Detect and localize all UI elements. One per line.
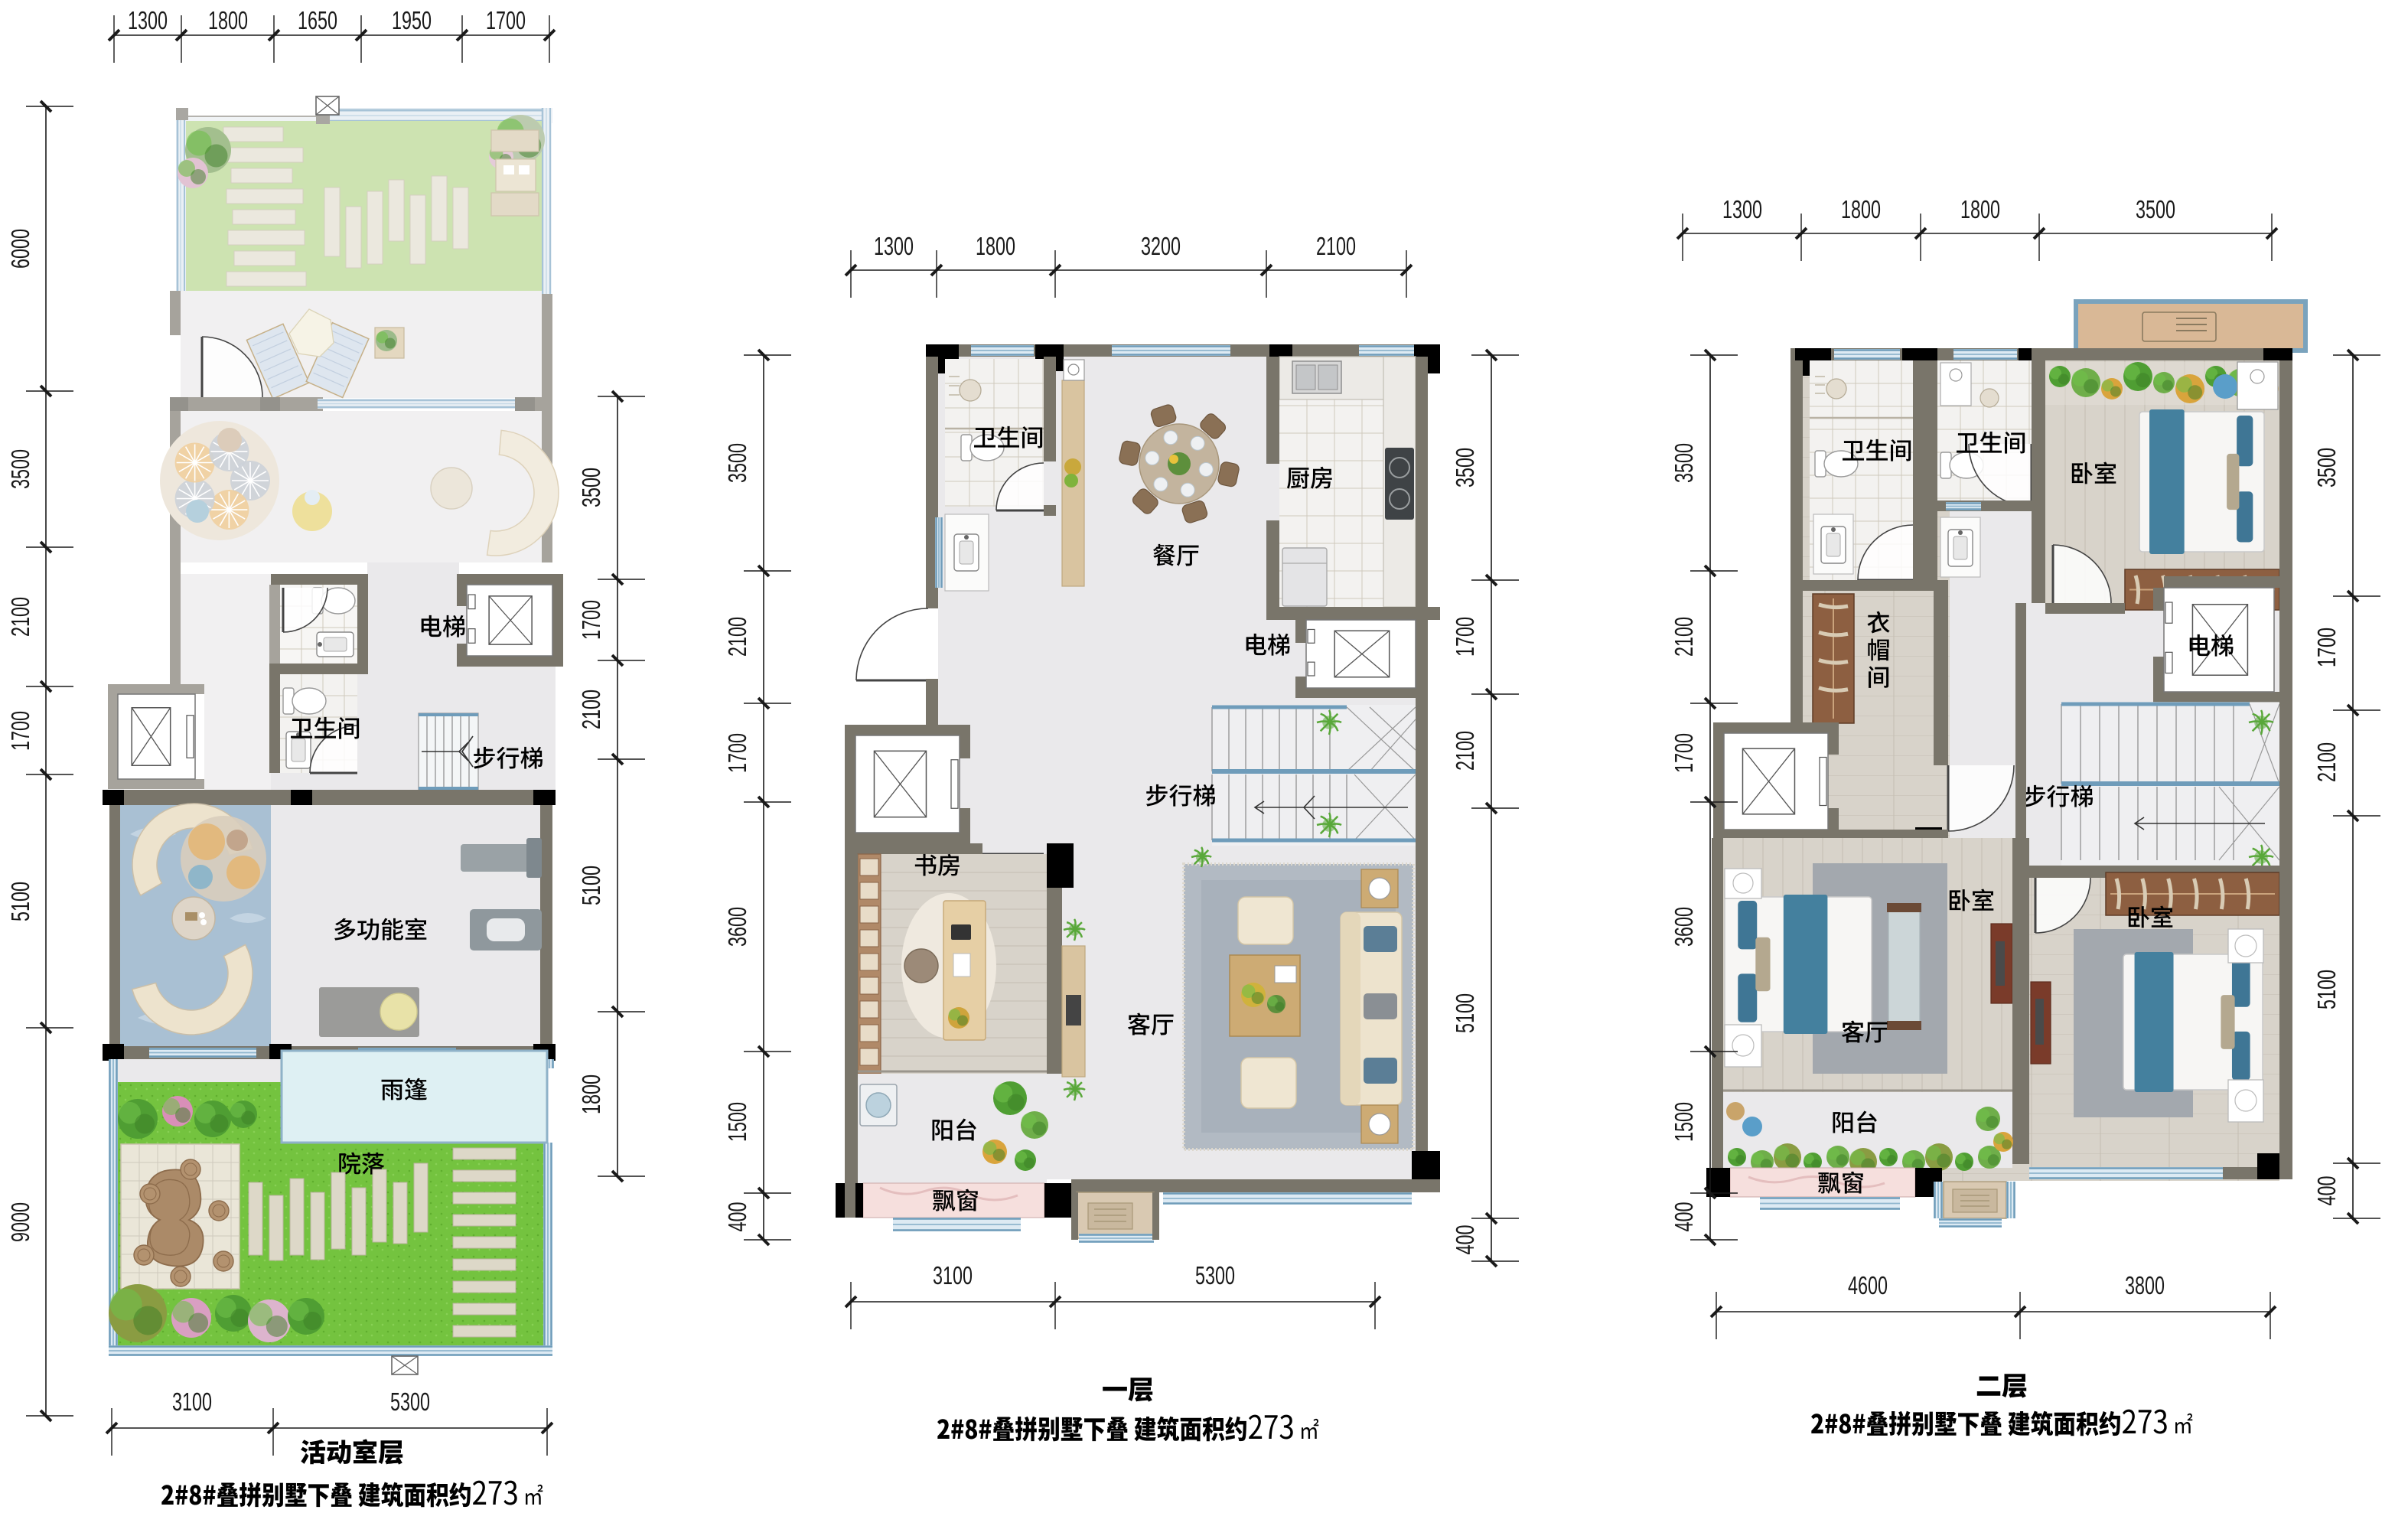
svg-text:3600: 3600 bbox=[723, 907, 751, 947]
svg-text:5300: 5300 bbox=[1195, 1261, 1235, 1290]
svg-text:1300: 1300 bbox=[128, 6, 168, 34]
svg-text:3100: 3100 bbox=[172, 1387, 212, 1416]
svg-text:1700: 1700 bbox=[1670, 733, 1698, 773]
svg-text:1700: 1700 bbox=[486, 6, 526, 34]
svg-text:2100: 2100 bbox=[1670, 617, 1698, 657]
svg-text:400: 400 bbox=[2312, 1176, 2341, 1206]
svg-text:2100: 2100 bbox=[1316, 232, 1356, 260]
svg-text:1800: 1800 bbox=[577, 1074, 605, 1114]
svg-text:2100: 2100 bbox=[1451, 731, 1479, 771]
svg-text:2100: 2100 bbox=[2312, 742, 2341, 782]
svg-text:400: 400 bbox=[1670, 1202, 1698, 1232]
svg-text:1700: 1700 bbox=[1451, 617, 1479, 657]
svg-text:1700: 1700 bbox=[6, 711, 34, 751]
svg-text:2100: 2100 bbox=[577, 690, 605, 729]
svg-text:3500: 3500 bbox=[723, 443, 751, 483]
svg-text:1800: 1800 bbox=[976, 232, 1015, 260]
svg-text:1650: 1650 bbox=[298, 6, 337, 34]
svg-text:5100: 5100 bbox=[577, 866, 605, 905]
svg-text:3500: 3500 bbox=[1451, 448, 1479, 487]
svg-text:2100: 2100 bbox=[723, 617, 751, 657]
svg-text:400: 400 bbox=[1451, 1225, 1479, 1255]
svg-text:1800: 1800 bbox=[1841, 195, 1881, 223]
svg-text:1300: 1300 bbox=[874, 232, 914, 260]
svg-text:4600: 4600 bbox=[1848, 1271, 1888, 1299]
svg-text:1950: 1950 bbox=[392, 6, 432, 34]
svg-text:3500: 3500 bbox=[2136, 195, 2175, 223]
svg-text:3500: 3500 bbox=[1670, 443, 1698, 483]
svg-text:3500: 3500 bbox=[6, 449, 34, 489]
svg-text:5300: 5300 bbox=[390, 1387, 430, 1416]
svg-text:3500: 3500 bbox=[577, 468, 605, 507]
svg-text:3500: 3500 bbox=[2312, 448, 2341, 487]
svg-text:3600: 3600 bbox=[1670, 907, 1698, 947]
svg-text:1800: 1800 bbox=[1960, 195, 2000, 223]
svg-text:3200: 3200 bbox=[1141, 232, 1181, 260]
svg-text:5100: 5100 bbox=[6, 882, 34, 921]
svg-text:1700: 1700 bbox=[2312, 628, 2341, 667]
svg-text:3800: 3800 bbox=[2125, 1271, 2165, 1299]
svg-text:5100: 5100 bbox=[1451, 993, 1479, 1033]
svg-text:3100: 3100 bbox=[933, 1261, 973, 1290]
svg-text:1500: 1500 bbox=[1670, 1102, 1698, 1142]
svg-text:400: 400 bbox=[723, 1202, 751, 1232]
svg-text:5100: 5100 bbox=[2312, 970, 2341, 1009]
svg-text:1700: 1700 bbox=[577, 600, 605, 640]
svg-text:2100: 2100 bbox=[6, 597, 34, 637]
svg-text:1800: 1800 bbox=[208, 6, 248, 34]
svg-text:6000: 6000 bbox=[6, 229, 34, 269]
svg-text:1500: 1500 bbox=[723, 1102, 751, 1142]
svg-text:1300: 1300 bbox=[1722, 195, 1762, 223]
svg-text:1700: 1700 bbox=[723, 733, 751, 773]
svg-text:9000: 9000 bbox=[6, 1202, 34, 1242]
